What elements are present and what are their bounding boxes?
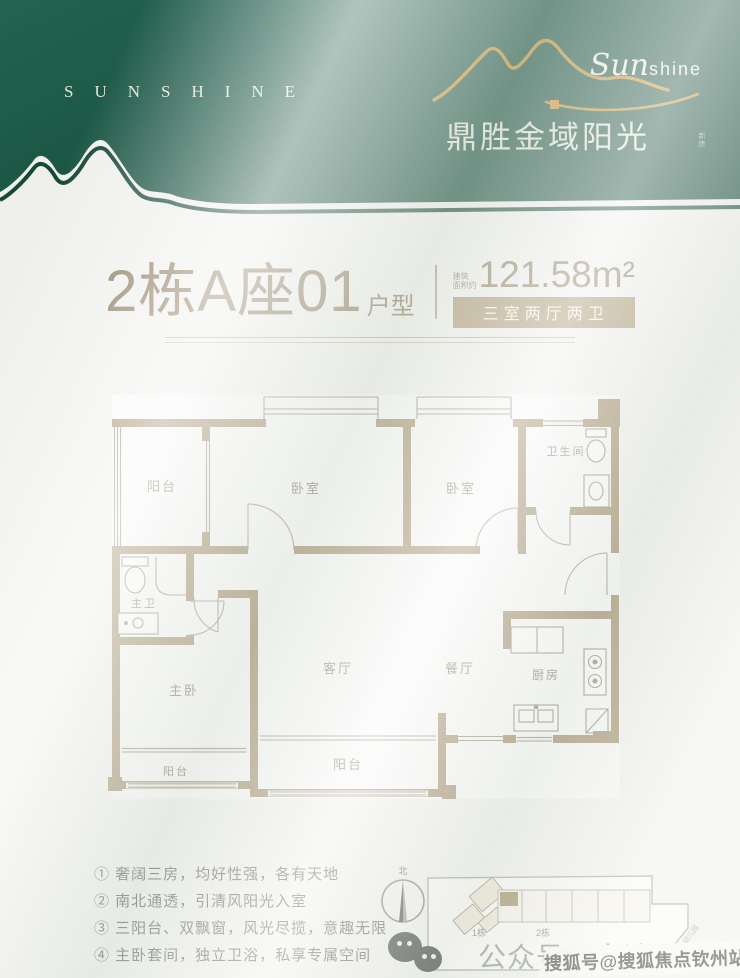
floorplan: 阳台 卧室 卧室 卫生间 主卫 主卧 客厅 餐厅 厨房 阳台 阳台 — [98, 383, 642, 807]
unit-title: 2栋A座01 — [105, 261, 362, 323]
watermark-text: 搜狐号@搜狐焦点钦州站 — [536, 941, 740, 978]
area-value: 121.58m² — [479, 256, 635, 294]
feature-list: ① 奢阔三房，均好性强，各有天地 ② 南北通透，引清风阳光入室 ③ 三阳台、双飘… — [94, 861, 387, 969]
area-prefix-line1: 建筑 — [453, 272, 477, 281]
room-label-master-bed: 主卧 — [169, 683, 199, 698]
logo-script-sun: Sun — [590, 48, 649, 83]
room-label-dining-room: 餐厅 — [445, 661, 475, 676]
brand-name-spaced: SUNSHINE — [64, 82, 316, 102]
room-label-kitchen: 厨房 — [532, 667, 560, 682]
feature-item-3: ③ 三阳台、双飘窗，风光尽揽，意趣无限 — [94, 915, 387, 942]
area-prefix-line2: 面积约 — [453, 281, 477, 290]
wechat-icon — [414, 946, 442, 972]
room-label-bedroom-1: 卧室 — [291, 481, 321, 496]
room-label-balcony-top: 阳台 — [147, 479, 177, 494]
feature-item-4: ④ 主卧套间，独立卫浴，私享专属空间 — [94, 942, 387, 969]
logo-script-shine: shine — [649, 59, 702, 79]
room-label-balcony-mid: 阳台 — [333, 757, 363, 772]
room-label-balcony-left: 阳台 — [163, 764, 189, 778]
unit-title-block: 2栋A座01 户型 建筑 面积约 121.58m² 三室两厅两卫 — [0, 256, 740, 328]
highlighted-unit — [500, 892, 518, 906]
poster-page: SUNSHINE Sunshine 鼎胜金域阳光 新房 2栋A座01 户型 — [0, 0, 740, 978]
layout-badge: 三室两厅两卫 — [453, 297, 635, 328]
logo-orange-square-icon — [550, 100, 559, 109]
wechat-icons — [388, 930, 468, 974]
room-label-bathroom: 卫生间 — [547, 444, 586, 458]
feature-item-2: ② 南北通透，引清风阳光入室 — [94, 888, 387, 915]
feature-item-1: ① 奢阔三房，均好性强，各有天地 — [94, 861, 387, 888]
area-block: 建筑 面积约 121.58m² 三室两厅两卫 — [453, 256, 635, 328]
area-prefix: 建筑 面积约 — [453, 272, 477, 290]
header-banner: SUNSHINE Sunshine 鼎胜金域阳光 新房 — [0, 0, 740, 232]
room-label-living-room: 客厅 — [323, 661, 353, 676]
unit-title-suffix: 户型 — [367, 286, 415, 321]
siteplan-building-2 — [498, 890, 650, 922]
room-label-master-bath: 主卫 — [131, 597, 157, 610]
logo-script-text: Sunshine — [590, 48, 702, 83]
mountain-ridge-edge — [0, 132, 740, 232]
title-divider — [435, 265, 437, 319]
room-label-bedroom-2: 卧室 — [446, 481, 476, 496]
title-underline — [165, 337, 575, 343]
